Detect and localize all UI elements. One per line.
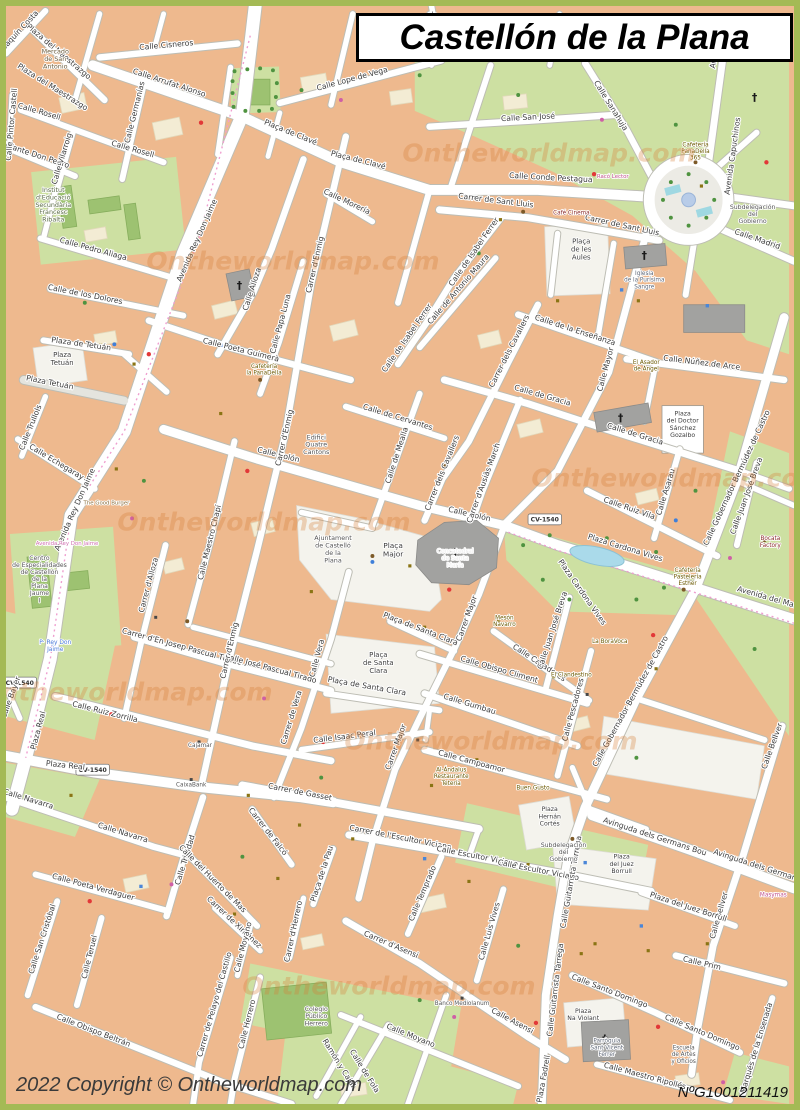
place-label: Escuelade Artesy Oficios [671, 1046, 695, 1065]
cafe-icon [682, 588, 686, 592]
tree-icon [521, 543, 525, 547]
tree-icon [83, 301, 87, 305]
cafe-icon [185, 619, 189, 623]
shop-icon [728, 556, 732, 560]
shop-icon [262, 696, 266, 700]
city-map-canvas[interactable]: CV-1540CV-1540CV-1540††††††Avenida Rey D… [6, 6, 794, 1104]
restaurant-icon [430, 784, 433, 787]
landmark-building [684, 305, 745, 333]
place-label: El Clandestino [551, 673, 592, 679]
pharmacy-icon [147, 352, 151, 356]
place-label: Cafeteríala PanaDella [246, 363, 281, 377]
tree-icon [704, 180, 708, 184]
place-label: El Asadorde Ángel [633, 360, 660, 373]
map-number: NºG1001211419 [678, 1084, 788, 1101]
shop-icon [339, 98, 343, 102]
tree-icon [548, 533, 552, 537]
map-title-box: Castellón de la Plana [356, 13, 793, 62]
pharmacy-icon [651, 633, 655, 637]
restaurant-icon [298, 823, 301, 826]
restaurant-icon [647, 949, 650, 952]
place-label: Buen Gusto [516, 785, 550, 791]
tree-icon [257, 109, 261, 113]
building [389, 89, 412, 106]
restaurant-icon [247, 794, 250, 797]
church-cross-icon: † [752, 91, 758, 104]
pharmacy-icon [447, 587, 451, 591]
pharmacy-icon [199, 121, 203, 125]
shop-icon [452, 1015, 456, 1019]
tree-icon [712, 198, 716, 202]
tree-icon [418, 998, 422, 1002]
building [503, 94, 528, 110]
bike-icon [370, 560, 374, 564]
pharmacy-icon [88, 899, 92, 903]
tree-icon [661, 198, 665, 202]
bank-icon [461, 997, 464, 1000]
place-label: The Good Burger [83, 501, 131, 507]
church-cross-icon: † [237, 279, 243, 292]
tree-icon [258, 66, 262, 70]
restaurant-icon [593, 942, 596, 945]
tree-icon [233, 69, 237, 73]
restaurant-icon [310, 590, 313, 593]
bike-icon [674, 518, 678, 522]
shop-icon [600, 118, 604, 122]
tree-icon [674, 123, 678, 127]
restaurant-icon [219, 412, 222, 415]
restaurant-icon [408, 564, 411, 567]
place-label: Plaçade lesAules [571, 237, 592, 261]
place-label: Banco Mediolanum [435, 1001, 490, 1007]
place-label: Avenida Rey Don Jaime [36, 541, 99, 547]
restaurant-icon [467, 880, 470, 883]
transit-icon [640, 924, 643, 927]
restaurant-icon [700, 184, 703, 187]
pharmacy-icon [656, 1025, 660, 1029]
tree-icon [418, 73, 422, 77]
fountain [682, 193, 696, 207]
transit-icon [706, 304, 709, 307]
pharmacy-icon [534, 1021, 538, 1025]
route-badge-label: CV-1540 [531, 517, 559, 524]
bank-icon [154, 616, 157, 619]
tree-icon [567, 598, 571, 602]
map-title: Castellón de la Plana [399, 18, 749, 58]
tree-icon [753, 647, 757, 651]
place-label: CaixaBank [176, 782, 207, 788]
tree-icon [319, 776, 323, 780]
restaurant-icon [706, 942, 709, 945]
tree-icon [516, 93, 520, 97]
pharmacy-icon [764, 160, 768, 164]
restaurant-icon [351, 837, 354, 840]
place-label: MesónNavarro [493, 614, 516, 628]
bank-icon [190, 778, 193, 781]
transit-icon [139, 885, 142, 888]
cafe-icon [370, 554, 374, 558]
tree-icon [270, 107, 274, 111]
place-label: Masymas [760, 892, 787, 898]
tree-icon [687, 224, 691, 228]
tree-icon [662, 586, 666, 590]
tree-icon [694, 489, 698, 493]
tree-icon [669, 180, 673, 184]
place-label: PlazaTetuán [50, 351, 74, 367]
pharmacy-icon [245, 469, 249, 473]
restaurant-icon [132, 363, 135, 366]
tree-icon [245, 67, 249, 71]
place-label: PlazaHernánCortés [538, 806, 561, 827]
tree-icon [704, 216, 708, 220]
tree-icon [669, 216, 673, 220]
copyright-text: 2022 Copyright © Ontheworldmap.com [16, 1074, 362, 1097]
church-cross-icon: † [642, 249, 648, 262]
place-label: Café Cinema [553, 210, 590, 217]
cafe-icon [521, 210, 525, 214]
bank-icon [416, 738, 419, 741]
restaurant-icon [637, 299, 640, 302]
tree-icon [541, 578, 545, 582]
restaurant-icon [655, 667, 658, 670]
tree-icon [243, 109, 247, 113]
tree-icon [634, 598, 638, 602]
church-cross-icon: † [618, 411, 624, 424]
map-frame: CV-1540CV-1540CV-1540††††††Avenida Rey D… [0, 0, 800, 1110]
place-label: Mercadode SanAntonio [42, 47, 69, 70]
tree-icon [634, 756, 638, 760]
tree-icon [300, 88, 304, 92]
restaurant-icon [276, 877, 279, 880]
shop-icon [130, 516, 134, 520]
restaurant-icon [580, 952, 583, 955]
map-page: CV-1540CV-1540CV-1540††††††Avenida Rey D… [0, 0, 800, 1110]
tree-icon [274, 95, 278, 99]
tree-icon [271, 68, 275, 72]
bank-icon [586, 693, 589, 696]
tree-icon [516, 944, 520, 948]
place-label: ColegioPúblicoHerrero [305, 1006, 329, 1027]
transit-icon [584, 861, 587, 864]
tree-icon [232, 105, 236, 109]
cafe-icon [258, 378, 262, 382]
tree-icon [275, 81, 279, 85]
place-label: BocataFactory [760, 536, 781, 549]
place-label: Cajamar [188, 743, 213, 749]
transit-icon [423, 857, 426, 860]
restaurant-icon [556, 299, 559, 302]
tree-icon [142, 479, 146, 483]
tree-icon [231, 91, 235, 95]
transit-icon [620, 288, 623, 291]
restaurant-icon [115, 467, 118, 470]
place-label: PlaçaMajor [383, 541, 404, 559]
place-label: La BoraVoca [592, 639, 627, 645]
restaurant-icon [69, 794, 72, 797]
place-label: Racó Lector [597, 173, 630, 180]
tree-icon [687, 172, 691, 176]
bike-icon [112, 342, 116, 346]
tree-icon [231, 79, 235, 83]
tree-icon [240, 855, 244, 859]
